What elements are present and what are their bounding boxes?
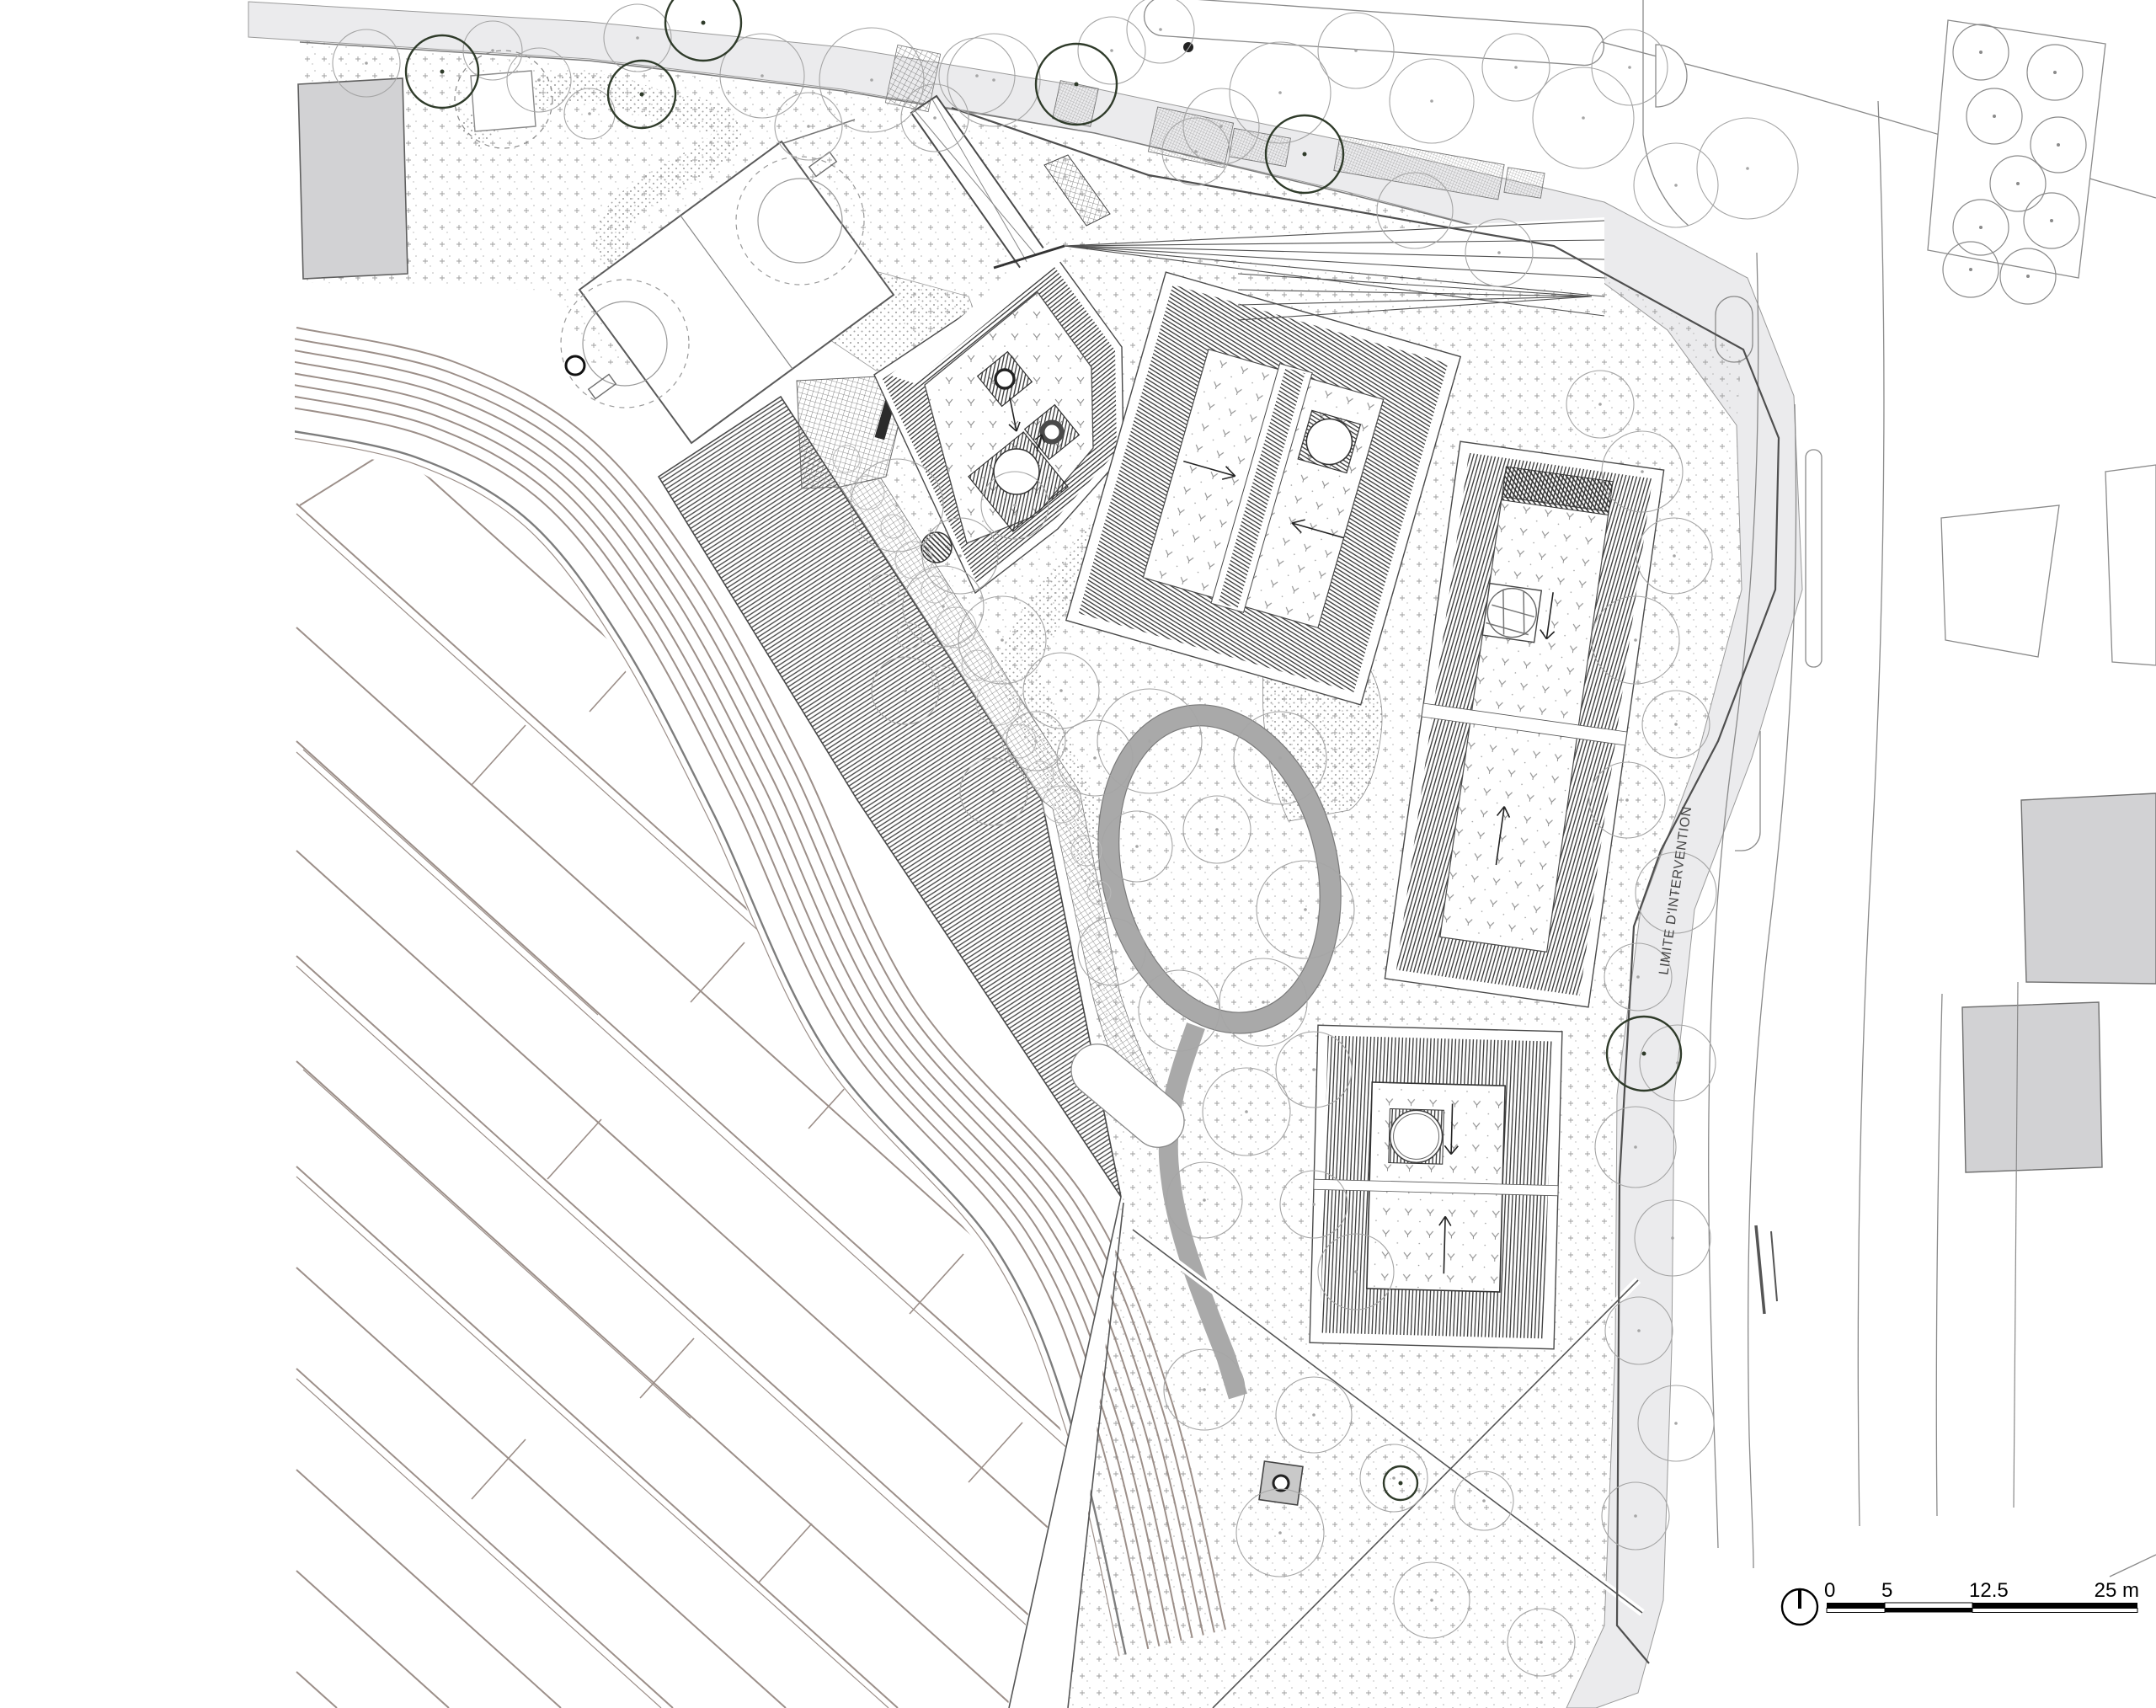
svg-text:25 m: 25 m [2095,1579,2139,1602]
svg-text:12.5: 12.5 [1969,1579,2009,1602]
svg-text:5: 5 [1881,1579,1892,1602]
svg-text:0: 0 [1824,1579,1835,1602]
